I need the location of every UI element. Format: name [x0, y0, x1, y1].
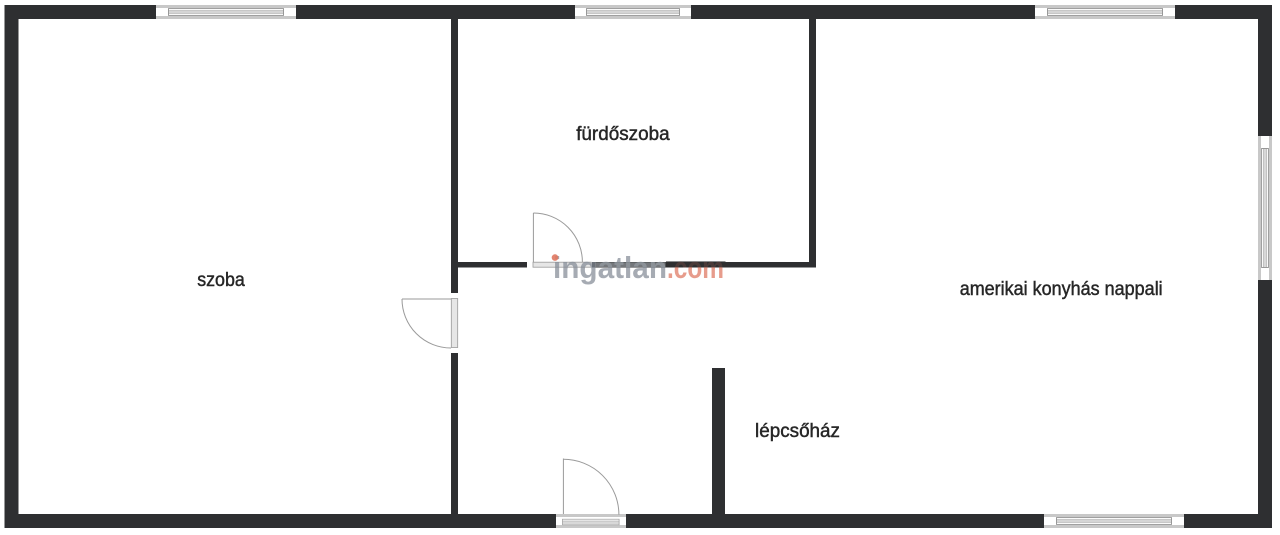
svg-text:ingatlan: ingatlan — [553, 250, 667, 285]
svg-text:fürdőszoba: fürdőszoba — [576, 123, 670, 145]
svg-text:szoba: szoba — [197, 269, 245, 291]
svg-text:lépcsőház: lépcsőház — [755, 420, 840, 442]
svg-text:amerikai konyhás nappali: amerikai konyhás nappali — [960, 278, 1163, 300]
svg-text:.com: .com — [667, 250, 724, 285]
